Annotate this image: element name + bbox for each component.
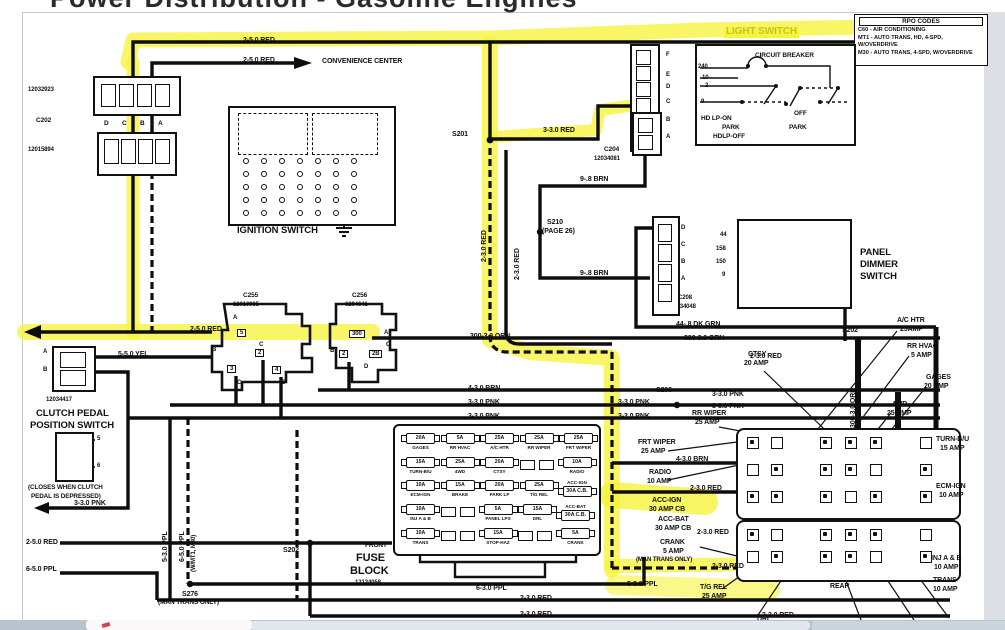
wire-label: RADIO — [649, 469, 671, 476]
wire-label: 2-5.0 RED — [26, 539, 58, 546]
fuse-cavity-empty — [518, 531, 533, 541]
fuse: 15ADRL — [518, 504, 557, 521]
wire-label: 300 — [349, 330, 365, 338]
wire-label: 300-3.0 ORN — [684, 335, 724, 342]
ignition-terminal — [261, 197, 267, 203]
wire-label: 3-3.0 PNK — [468, 413, 500, 420]
terminal-square — [747, 491, 759, 503]
wire-label: 2-3.0 RED — [520, 595, 552, 602]
fuse: 5APANEL LPS — [479, 504, 518, 521]
wire-label: ECM-IGN — [936, 483, 966, 490]
fuse: 25ARR WIPER — [520, 433, 559, 450]
wire-label: 5-3.0 PPL — [162, 531, 169, 562]
wire-label: 10 AMP — [933, 586, 957, 593]
wire-label: 5 AMP — [663, 548, 684, 555]
wire-label: C — [259, 342, 263, 348]
terminal-square — [870, 464, 882, 476]
wire-label: 2 — [255, 349, 264, 357]
fuse-cavity-empty — [460, 531, 475, 541]
wire-label: A — [384, 330, 388, 336]
terminal-square — [771, 491, 783, 503]
wire-label: B — [330, 348, 334, 354]
wire-label: 9-.8 BRN — [580, 270, 608, 277]
scrollbar-track-right[interactable] — [812, 621, 1005, 630]
wire-label: 10 AMP — [939, 492, 963, 499]
wire-label: 5-3.0 PPL — [627, 581, 658, 588]
ignition-terminal — [333, 210, 339, 216]
wire-label: E — [281, 380, 285, 386]
wire-label: S276 — [182, 591, 198, 598]
circuit-breaker: ACC-BAT30A C.B. — [558, 504, 594, 521]
fuse-cavity-empty — [537, 531, 552, 541]
ignition-terminal — [297, 197, 303, 203]
wire-label: 3-3.0 RED — [543, 127, 575, 134]
wire-label: 5 AMP — [911, 352, 932, 359]
wire-label: 6294641 — [345, 302, 368, 308]
wire-label: GAGES — [926, 374, 951, 381]
wire-label: 10 AMP — [934, 564, 958, 571]
wire-label: D — [364, 364, 368, 370]
wire-label: 20 AMP — [924, 383, 948, 390]
wire-label: 300-3.0 ORN — [850, 388, 857, 428]
fuse: 25AFRT WIPER — [559, 433, 598, 450]
wire-label: 20 AMP — [744, 360, 768, 367]
fuse: 20ACTSY — [480, 457, 519, 474]
ignition-terminal — [333, 197, 339, 203]
wire-label: FRT WIPER — [638, 439, 676, 446]
wire-label: 30 AMP CB — [649, 506, 685, 513]
fuse-cavity-empty — [460, 507, 475, 517]
bottom-left-tab[interactable] — [86, 620, 252, 630]
terminal-square — [920, 437, 932, 449]
fuse: 15ASTOP-HAZ — [479, 528, 518, 545]
terminal-square — [845, 491, 857, 503]
wire-label: 2B — [369, 350, 382, 358]
ignition-terminal — [261, 184, 267, 190]
wire-label: 4-3.0 BRN — [468, 385, 500, 392]
wire-label: 25 AMP — [887, 410, 911, 417]
wire-label: 3-3.0 PNK — [74, 500, 106, 507]
wire-label: (MAN TRANS ONLY) — [636, 557, 692, 563]
terminal-square — [771, 437, 783, 449]
wire-label: (MAN TRANS ONLY) — [158, 600, 219, 607]
fuse: 10ARADIO — [558, 457, 597, 474]
wire-label: INJ A & B — [931, 555, 961, 562]
terminal-square — [920, 551, 932, 563]
wire-label: 4-3.0 BRN — [676, 456, 708, 463]
wire-label: 5-5.0 YEL — [118, 351, 149, 358]
wire-label: 10 AMP — [647, 478, 671, 485]
ignition-terminal — [315, 158, 321, 164]
wire-label: C — [386, 342, 390, 348]
ignition-terminal — [351, 197, 357, 203]
terminal-square — [870, 529, 882, 541]
ignition-terminal — [351, 158, 357, 164]
terminal-square — [820, 464, 832, 476]
wire-label: 2-3.0 RED — [520, 611, 552, 618]
terminal-square — [920, 529, 932, 541]
terminal-square — [820, 491, 832, 503]
wire-label: 2-5.0 RED — [190, 326, 222, 333]
fuse: 25A4WD — [441, 457, 480, 474]
wire-label: 2-5.0 RED — [243, 57, 275, 64]
terminal-square — [820, 529, 832, 541]
wire-label: S206 — [656, 387, 672, 394]
wire-label: 3-3.0 PNK — [468, 399, 500, 406]
terminal-square — [771, 529, 783, 541]
wire-label-layer: 2-5.0 RED2-5.0 REDCONVENIENCE CENTERS201… — [0, 0, 1005, 630]
ignition-terminal — [333, 184, 339, 190]
terminal-square — [845, 529, 857, 541]
wire-label: 3-3.0 PNK — [712, 391, 744, 398]
wire-label: C — [237, 380, 241, 386]
ignition-terminal — [315, 197, 321, 203]
ignition-terminal — [243, 171, 249, 177]
wire-label: ACC-IGN — [652, 497, 681, 504]
ignition-terminal — [351, 210, 357, 216]
terminal-square — [747, 529, 759, 541]
wire-label: 3 — [227, 365, 236, 373]
wire-label: 4 — [272, 366, 281, 374]
ignition-terminal — [279, 197, 285, 203]
fuse-cavity-empty — [520, 460, 535, 470]
wire-label: 25 AMP — [641, 448, 665, 455]
fuse-cavity-empty — [539, 460, 554, 470]
wire-label: 4WD — [892, 401, 907, 408]
wire-label: TRANS — [933, 577, 957, 584]
wire-label: RR HVAC — [907, 343, 938, 350]
wire-label: 12034081 — [594, 156, 620, 162]
fuse: 10ATRANS — [401, 528, 440, 545]
wire-label: S201 — [452, 131, 468, 138]
terminal-square — [920, 491, 932, 503]
wire-label: A — [233, 315, 237, 321]
ignition-terminal — [261, 158, 267, 164]
fuse: 15ABRAKE — [441, 480, 480, 497]
terminal-square — [845, 464, 857, 476]
ignition-terminal — [351, 184, 357, 190]
wire-label: 2-3.0 RED — [481, 230, 488, 262]
wire-label: 2-3.0 RED — [697, 529, 729, 536]
wire-label: B — [212, 347, 216, 353]
wire-label: CRANK — [660, 539, 685, 546]
terminal-square — [747, 551, 759, 563]
wire-label: 6-5.0 PPL — [179, 531, 186, 562]
terminal-square — [870, 437, 882, 449]
terminal-square — [820, 437, 832, 449]
terminal-square — [870, 491, 882, 503]
wire-label: 12010985 — [233, 302, 259, 308]
wire-label: CTSY — [748, 351, 766, 358]
wire-label: T/G REL — [700, 584, 727, 591]
terminal-square — [845, 551, 857, 563]
fuse: 10AINJ A & B — [401, 504, 440, 521]
wire-label: S210 — [547, 219, 563, 226]
terminal-square — [870, 551, 882, 563]
ignition-terminal — [279, 210, 285, 216]
ignition-terminal — [243, 210, 249, 216]
ignition-terminal — [279, 184, 285, 190]
fuse: 25AA/C HTR — [480, 433, 519, 450]
ignition-terminal — [351, 171, 357, 177]
wire-label: (PAGE 26) — [542, 228, 575, 235]
wire-label: 6-5.0 PPL — [26, 566, 57, 573]
wire-label: 5 — [237, 329, 246, 337]
terminal-square — [747, 464, 759, 476]
fuse-cavity-empty — [441, 507, 456, 517]
wire-label: 6-3.0 PPL — [476, 585, 507, 592]
wire-label: ACC-BAT — [658, 516, 689, 523]
wire-label: 44-.8 DK GRN — [676, 321, 720, 328]
fuse: 5ARR HVAC — [441, 433, 480, 450]
ignition-terminal — [279, 158, 285, 164]
ignition-terminal — [315, 171, 321, 177]
terminal-square — [920, 464, 932, 476]
wire-label: C204 — [604, 147, 619, 154]
wire-label: 2-3.0 RED — [690, 485, 722, 492]
scrollbar-thumb[interactable] — [250, 621, 810, 630]
ignition-terminal — [333, 158, 339, 164]
wire-label: 300-3.0 ORN — [470, 333, 510, 340]
wire-label: 9-.8 BRN — [580, 176, 608, 183]
wire-label: CONVENIENCE CENTER — [322, 58, 402, 65]
wire-label: S202 — [283, 547, 299, 554]
fuse: 25AT/G REL — [520, 480, 559, 497]
fuse-cavity-empty — [441, 531, 456, 541]
wire-label: TURN-B/U — [936, 436, 969, 443]
ignition-terminal — [243, 158, 249, 164]
ignition-terminal — [297, 184, 303, 190]
wire-label: 2 — [339, 350, 348, 358]
ignition-terminal — [297, 171, 303, 177]
wire-label: 2-3.0 RED — [712, 563, 744, 570]
terminal-square — [747, 437, 759, 449]
wire-label: 2-3.0 RED — [514, 248, 521, 280]
terminal-square — [820, 551, 832, 563]
fuse: 15ATURN-B/U — [401, 457, 440, 474]
circuit-breaker: ACC-IGN30A C.B. — [559, 480, 595, 497]
ignition-terminal — [243, 184, 249, 190]
wire-label: (W/MT1, M30) — [191, 535, 197, 572]
terminal-square — [845, 437, 857, 449]
wire-label: S202 — [842, 327, 858, 334]
terminal-square — [771, 464, 783, 476]
wire-label: REAR — [830, 583, 849, 590]
ignition-terminal — [261, 210, 267, 216]
ignition-terminal — [261, 171, 267, 177]
ignition-terminal — [333, 171, 339, 177]
ignition-terminal — [243, 197, 249, 203]
wiring-diagram-page: Power Distribution - Gasoline Engines — [0, 0, 1005, 630]
wire-label: 2-5.0 RED — [243, 37, 275, 44]
fuse: 10AECM-IGN — [401, 480, 440, 497]
fuse: 20AGAGES — [401, 433, 440, 450]
ignition-terminal — [297, 158, 303, 164]
wire-label: 15 AMP — [940, 445, 964, 452]
wire-label: 3-3.0 PNK — [618, 399, 650, 406]
wire-label: A/C HTR — [897, 317, 925, 324]
fuse: 20APARK LP — [480, 480, 519, 497]
wire-label: 3-3.0 PNK — [618, 413, 650, 420]
wire-label: 25 AMP — [695, 419, 719, 426]
wire-label: 25 AMP — [702, 593, 726, 600]
ignition-terminal — [279, 171, 285, 177]
wire-label: C255 — [243, 293, 258, 300]
wire-label: C256 — [352, 293, 367, 300]
ignition-terminal — [315, 210, 321, 216]
ignition-terminal — [297, 210, 303, 216]
terminal-square — [771, 551, 783, 563]
wire-label: 25AMP — [900, 326, 923, 333]
fuse: 5ACRANK — [556, 528, 595, 545]
ignition-terminal — [315, 184, 321, 190]
wire-label: 30 AMP CB — [655, 525, 691, 532]
wire-label: RR WIPER — [692, 410, 726, 417]
